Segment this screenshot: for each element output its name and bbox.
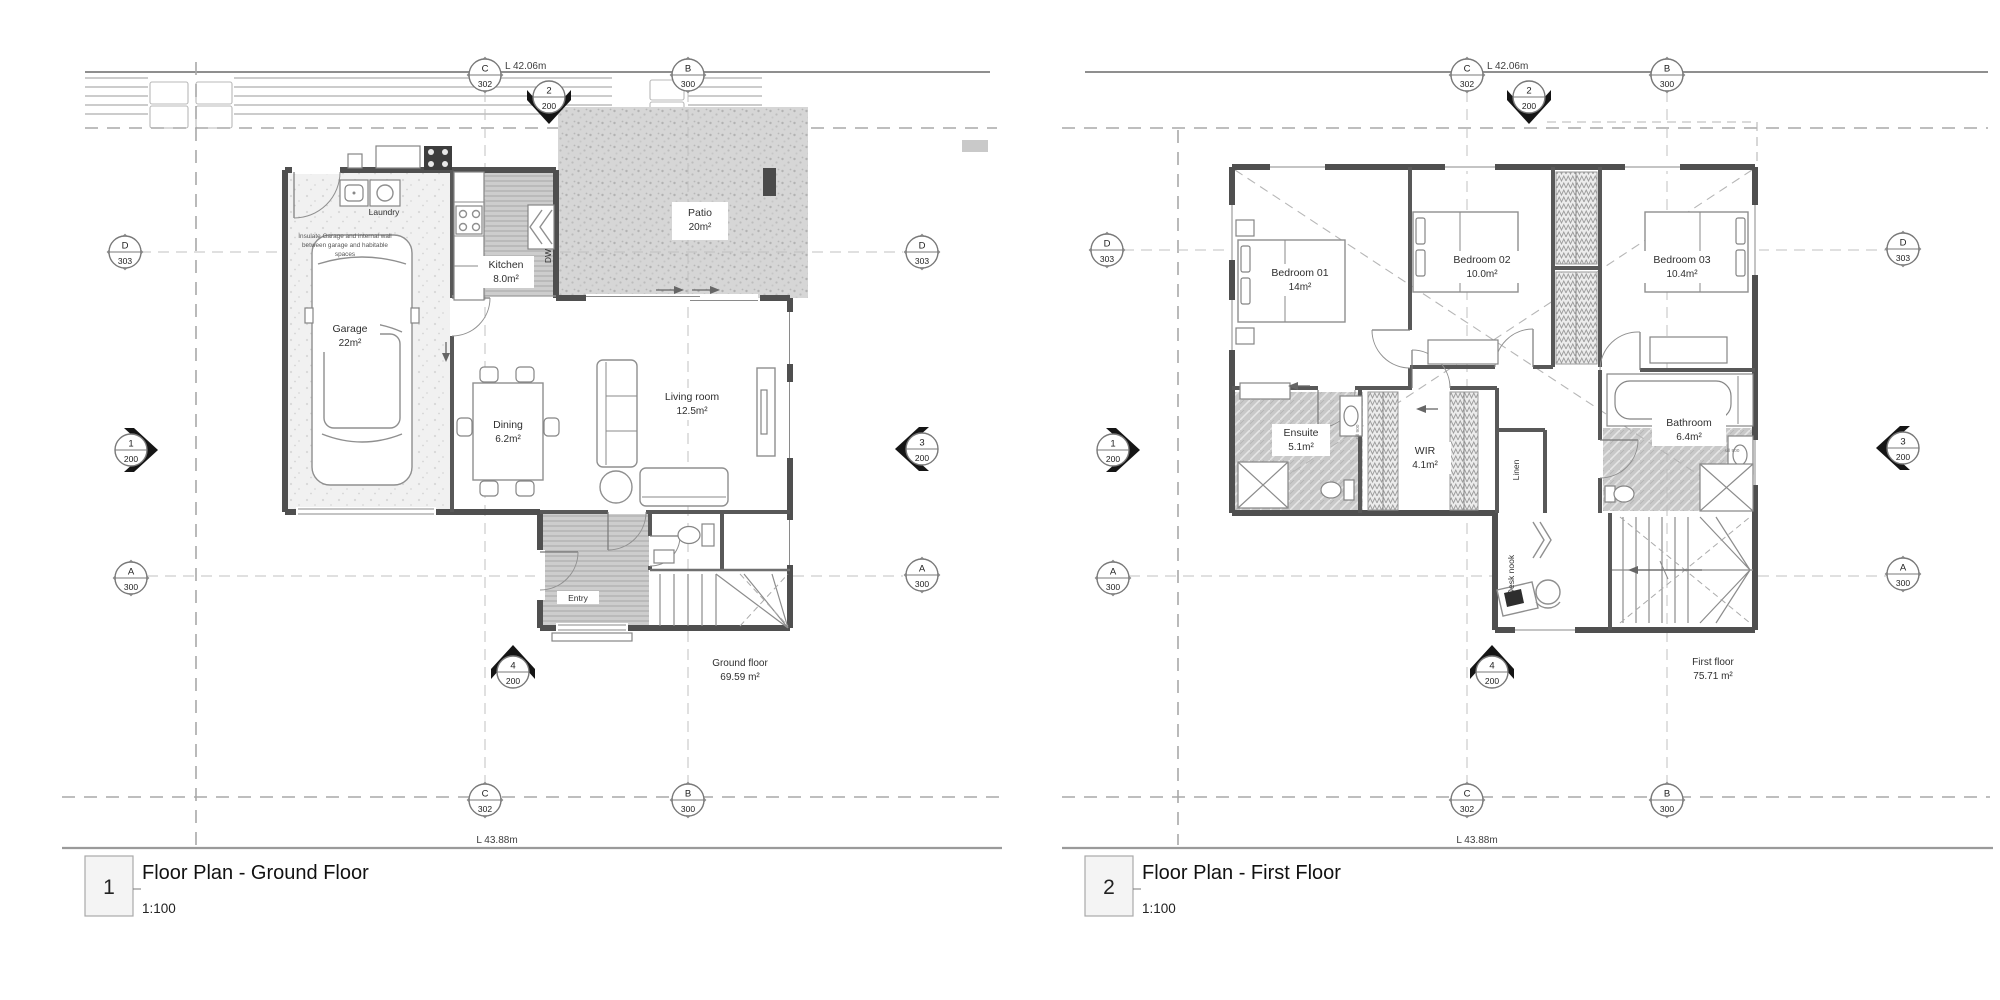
living-area: 12.5m² — [676, 406, 708, 417]
svg-text:Ground floor: Ground floor — [712, 658, 768, 669]
svg-text:4: 4 — [510, 661, 515, 672]
svg-text:D: D — [919, 241, 926, 252]
bedroom-01 — [1236, 220, 1345, 399]
svg-text:200: 200 — [1106, 454, 1120, 464]
section-marker-3-right: 3200 — [1876, 426, 1919, 470]
svg-text:302: 302 — [478, 79, 492, 89]
bathroom-sill-note: sill 900 — [1725, 448, 1740, 454]
view-scale: 1:100 — [1142, 901, 1176, 916]
svg-text:C: C — [1464, 789, 1471, 800]
bbq-cooktop — [424, 146, 452, 170]
garage-room — [305, 235, 419, 485]
svg-text:75.71 m²: 75.71 m² — [1693, 671, 1733, 682]
section-marker-1-left: 1200 — [115, 428, 158, 472]
bedroom2-label: Bedroom 02 — [1453, 254, 1510, 266]
svg-text:3: 3 — [919, 438, 924, 449]
svg-text:302: 302 — [478, 804, 492, 814]
svg-text:302: 302 — [1460, 79, 1474, 89]
svg-text:1: 1 — [128, 439, 133, 450]
svg-text:2: 2 — [546, 86, 551, 97]
svg-text:300: 300 — [1896, 578, 1910, 588]
bedroom3-area: 10.4m² — [1666, 269, 1698, 280]
wir-label: WIR — [1415, 445, 1436, 457]
grid-marker-d-left: D303 — [107, 234, 142, 269]
wir-area: 4.1m² — [1412, 460, 1438, 471]
section-marker-1-left: 1200 — [1097, 428, 1140, 472]
svg-text:200: 200 — [915, 453, 929, 463]
svg-text:A: A — [1900, 563, 1907, 574]
bathroom-area: 6.4m² — [1676, 432, 1702, 443]
north-wall-appliances — [348, 146, 452, 170]
garage-label: Garage — [332, 323, 367, 335]
grid-marker-a-left: A300 — [1095, 560, 1130, 595]
svg-text:300: 300 — [1660, 79, 1674, 89]
car — [305, 235, 419, 485]
entry-floor — [543, 514, 649, 627]
svg-text:300: 300 — [915, 579, 929, 589]
bedroom1-label: Bedroom 01 — [1271, 267, 1328, 279]
svg-text:2: 2 — [1526, 86, 1531, 97]
svg-text:300: 300 — [1106, 582, 1120, 592]
ground-title-block: 1 Floor Plan - Ground Floor 1:100 — [62, 848, 1002, 916]
laundry-area — [340, 180, 400, 206]
first-title-block: 2 Floor Plan - First Floor 1:100 — [1062, 848, 1993, 916]
porch-step — [552, 633, 632, 641]
svg-text:200: 200 — [1896, 452, 1910, 462]
grid-marker-b-bottom: B300 — [670, 782, 705, 817]
ensuite-sill-note: sill 900 — [1355, 424, 1361, 439]
floor-plan-sheet: Garage 22m² Kitchen 8.0m² Laundry DW Din… — [0, 0, 2000, 1000]
grid-marker-d-right: D303 — [904, 234, 939, 269]
svg-text:1: 1 — [1110, 439, 1115, 450]
svg-text:69.59 m²: 69.59 m² — [720, 672, 760, 683]
svg-text:C: C — [1464, 64, 1471, 75]
first-dim-bottom: L 43.88m — [1456, 835, 1497, 846]
svg-text:Insulate Garage and internal w: Insulate Garage and internal wall — [298, 233, 391, 240]
svg-text:D: D — [122, 241, 129, 252]
dishwasher-label: DW — [543, 249, 553, 263]
grid-marker-d-left: D303 — [1089, 232, 1124, 267]
first-stairs — [1612, 517, 1753, 623]
ground-dim-top: L 42.06m — [505, 61, 546, 72]
svg-text:B: B — [685, 64, 691, 75]
view-title: Floor Plan - Ground Floor — [142, 862, 369, 884]
svg-text:303: 303 — [1100, 254, 1114, 264]
bedroom2-area: 10.0m² — [1466, 269, 1498, 280]
svg-text:200: 200 — [1485, 676, 1499, 686]
svg-text:B: B — [685, 789, 691, 800]
svg-text:300: 300 — [681, 79, 695, 89]
svg-text:A: A — [128, 567, 135, 578]
bedroom3-label: Bedroom 03 — [1653, 254, 1710, 266]
grid-marker-c-bottom: C302 — [467, 782, 502, 817]
svg-text:D: D — [1104, 239, 1111, 250]
bathroom-label: Bathroom — [1666, 417, 1712, 429]
dining-label: Dining — [493, 419, 523, 431]
svg-text:200: 200 — [124, 454, 138, 464]
ensuite-area: 5.1m² — [1288, 442, 1314, 453]
svg-text:3: 3 — [1900, 437, 1905, 448]
svg-text:A: A — [1110, 567, 1117, 578]
svg-text:302: 302 — [1460, 804, 1474, 814]
linen-label: Linen — [1511, 459, 1521, 480]
svg-text:D: D — [1900, 238, 1907, 249]
dining-area: 6.2m² — [495, 434, 521, 445]
patio-column — [763, 168, 776, 196]
garage-area: 22m² — [339, 338, 362, 349]
kitchen-label: Kitchen — [488, 259, 523, 271]
svg-text:between garage and habitable: between garage and habitable — [302, 242, 388, 249]
svg-text:303: 303 — [1896, 253, 1910, 263]
entry-label: Entry — [568, 593, 589, 603]
ground-dim-bottom: L 43.88m — [476, 835, 517, 846]
grid-marker-a-right: A300 — [1885, 556, 1920, 591]
svg-text:300: 300 — [124, 582, 138, 592]
svg-text:200: 200 — [542, 101, 556, 111]
svg-text:spaces: spaces — [335, 251, 355, 258]
grid-marker-a-right: A300 — [904, 557, 939, 592]
living-label: Living room — [665, 391, 720, 403]
neighbor-fragment — [962, 140, 988, 152]
first-grid-markers: C302 B300 C302 B300 D303 D303 — [1089, 57, 1920, 817]
bedroom-03 — [1645, 212, 1748, 363]
ground-stairs — [660, 574, 788, 628]
svg-text:300: 300 — [681, 804, 695, 814]
grid-marker-a-left: A300 — [113, 560, 148, 595]
bedroom-02 — [1413, 212, 1518, 364]
section-marker-2-top: 2200 — [1507, 81, 1551, 124]
patio-area — [763, 168, 776, 196]
svg-text:303: 303 — [118, 256, 132, 266]
sheet-number: 2 — [1103, 876, 1115, 899]
svg-text:First floor: First floor — [1692, 657, 1734, 668]
svg-text:B: B — [1664, 789, 1670, 800]
first-floor-panel: Bedroom 01 14m² Bedroom 02 10.0m² Bedroo… — [962, 57, 1993, 916]
desk-nook-label: Desk nook — [1506, 554, 1516, 595]
first-dim-top: L 42.06m — [1487, 61, 1528, 72]
grid-marker-c-top: C302 — [1449, 57, 1484, 92]
svg-text:C: C — [482, 789, 489, 800]
svg-text:C: C — [482, 64, 489, 75]
view-scale: 1:100 — [142, 901, 176, 916]
svg-text:300: 300 — [1660, 804, 1674, 814]
kitchen-area: 8.0m² — [493, 274, 519, 285]
wc-room — [654, 524, 714, 563]
grid-marker-c-bottom: C302 — [1449, 782, 1484, 817]
patio-area-label: 20m² — [689, 222, 712, 233]
first-area-summary: First floor 75.71 m² — [1692, 657, 1734, 682]
ensuite-label: Ensuite — [1283, 427, 1318, 439]
section-marker-4-bottom: 4200 — [491, 645, 535, 688]
ground-area-summary: Ground floor 69.59 m² — [712, 658, 768, 683]
section-marker-4-bottom: 4200 — [1470, 645, 1514, 688]
laundry-label: Laundry — [369, 207, 400, 217]
sheet-number: 1 — [103, 876, 115, 899]
svg-text:B: B — [1664, 64, 1670, 75]
svg-text:303: 303 — [915, 256, 929, 266]
grid-marker-b-top: B300 — [1649, 57, 1684, 92]
svg-text:A: A — [919, 564, 926, 575]
ground-floor-panel: Garage 22m² Kitchen 8.0m² Laundry DW Din… — [62, 57, 1002, 916]
svg-text:200: 200 — [506, 676, 520, 686]
bedroom1-area: 14m² — [1289, 282, 1312, 293]
grid-marker-d-right: D303 — [1885, 231, 1920, 266]
section-marker-3-right: 3200 — [895, 427, 938, 471]
svg-text:200: 200 — [1522, 101, 1536, 111]
patio-label: Patio — [688, 207, 712, 219]
view-title: Floor Plan - First Floor — [1142, 862, 1341, 884]
svg-text:4: 4 — [1489, 661, 1494, 672]
grid-marker-b-bottom: B300 — [1649, 782, 1684, 817]
